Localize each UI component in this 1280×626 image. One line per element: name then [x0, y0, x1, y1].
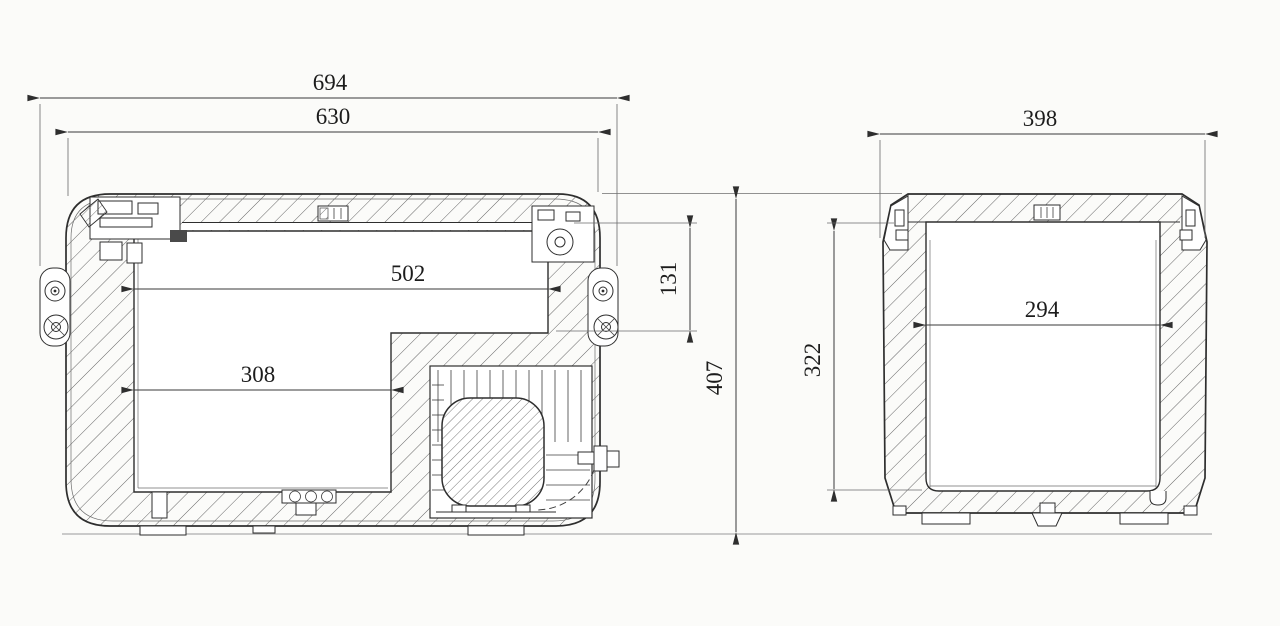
compressor-compartment: [430, 366, 619, 518]
hinge-bracket-right: [588, 268, 618, 346]
lid-center-striker: [318, 206, 348, 221]
latch-bracket-left: [40, 268, 70, 346]
side-section-view: [40, 194, 619, 535]
dim-label-side-inner-length-bottom: 308: [241, 362, 276, 387]
dim-label-end-overall-width: 398: [1023, 106, 1058, 131]
end-section-view: [883, 194, 1207, 526]
compressor: [442, 398, 544, 506]
dim-label-end-inner-width: 294: [1025, 297, 1060, 322]
side-lid-gap: [182, 223, 545, 231]
drain-pocket: [1150, 491, 1166, 505]
lid-hinge-pocket: [532, 206, 594, 262]
dim-label-side-step-depth: 131: [656, 262, 681, 297]
dim-label-side-overall-height: 407: [702, 361, 727, 396]
end-seal-pocket-right: [1180, 196, 1206, 250]
dim-label-side-inner-length-top: 502: [391, 261, 426, 286]
technical-drawing-canvas: 694 630 502 308 131 407: [0, 0, 1280, 626]
dim-label-side-lid-width: 630: [316, 104, 351, 129]
dim-label-end-inner-depth: 322: [800, 343, 825, 378]
dim-label-side-overall-width: 694: [313, 70, 348, 95]
end-inner-cavity: [926, 222, 1160, 491]
end-lid-latch: [1034, 205, 1060, 220]
cooler-section-drawing: 694 630 502 308 131 407: [0, 0, 1280, 626]
dim-side-overall-height: 407: [702, 199, 736, 532]
dim-side-lid-width: 630: [68, 104, 598, 196]
